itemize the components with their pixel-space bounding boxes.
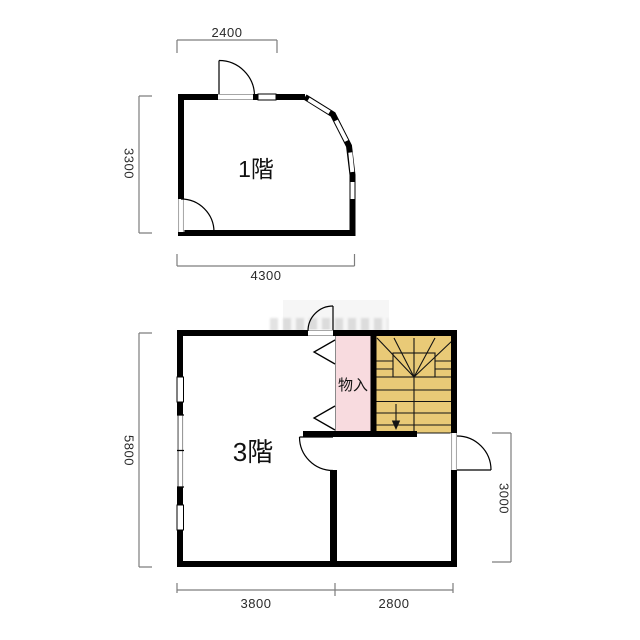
dim-text-bottom-floor1: 4300: [216, 268, 316, 283]
closet-label: 物入: [323, 374, 383, 395]
dim-line-3300: [139, 96, 152, 233]
dim-line-4300: [177, 254, 355, 266]
left-wall-window-1: [177, 377, 184, 402]
floor3-top-door-arc: [308, 306, 333, 331]
floor1-left-door-arc: [181, 199, 214, 232]
closet-folding-door-chevron-1: [314, 340, 335, 364]
floor1-entry-door-arc: [219, 61, 255, 97]
dim-text-right-floor3: 3000: [497, 469, 512, 529]
floor1-top-window: [258, 94, 276, 100]
floorplan-svg: [0, 0, 640, 640]
closet-folding-door-chevron-2: [314, 406, 335, 430]
dim-text-bottom-right-floor3: 2800: [344, 596, 444, 611]
floor1-label: 1階: [206, 150, 306, 184]
floor1-bay-wall: [305, 97, 353, 233]
dim-text-left-floor3: 5800: [122, 421, 137, 481]
dim-text-left-floor1: 3300: [122, 134, 137, 194]
left-wall-window-2: [177, 505, 184, 530]
floor3-label: 3階: [193, 432, 313, 469]
bay-window-2: [336, 121, 347, 142]
bay-window-1: [309, 99, 330, 112]
floor1-doors: [181, 61, 255, 233]
bay-window-3: [350, 153, 352, 173]
dim-line-5800: [139, 333, 152, 567]
floor3-right-door-arc: [457, 436, 491, 470]
dim-line-3800-2800: [177, 583, 453, 596]
floorplan-page: 2400 3300 4300 1階 5800 3800 2800 3000 3階…: [0, 0, 640, 640]
dim-line-2400: [177, 40, 277, 53]
dim-text-bottom-left-floor3: 3800: [206, 596, 306, 611]
floor3-windows: [177, 377, 184, 530]
floor1-plan: [178, 61, 356, 234]
dim-text-top-floor1: 2400: [177, 25, 277, 40]
